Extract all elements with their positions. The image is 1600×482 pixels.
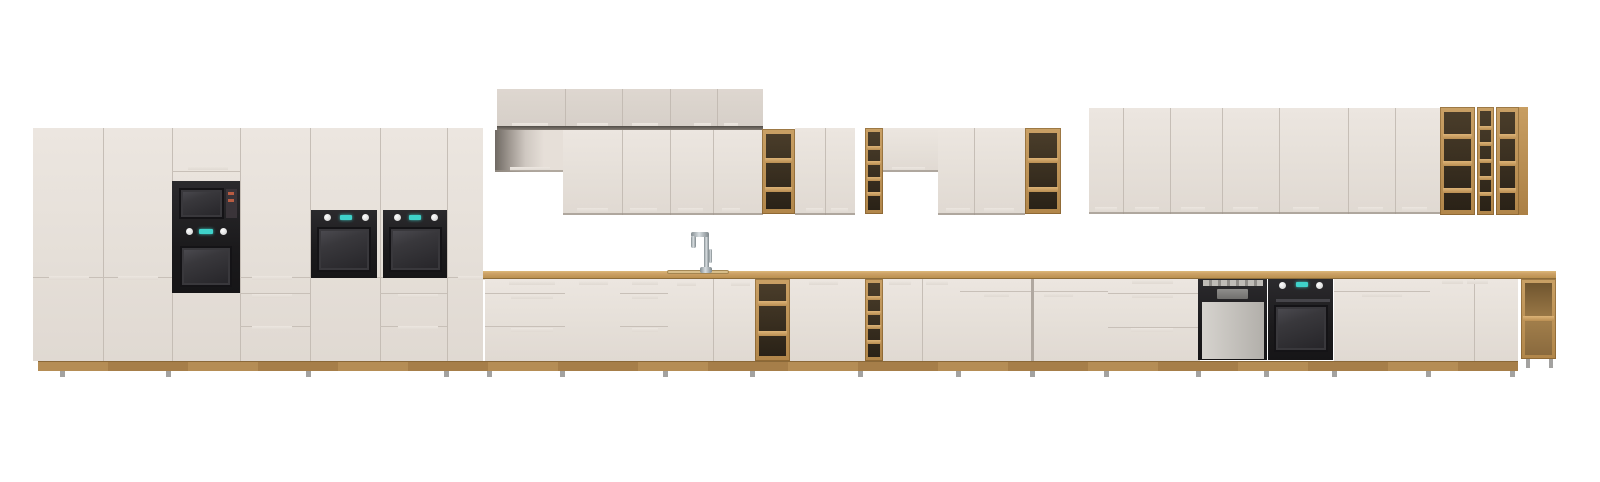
oven-knob [362, 214, 369, 221]
wine-rack-wall-unit-divider [1479, 142, 1492, 146]
wall-cabinet-seam [1348, 108, 1349, 214]
cabinet-foot [306, 371, 311, 377]
drawer-handle [1132, 294, 1173, 298]
countertop [483, 271, 1556, 279]
faucet-lever [709, 249, 712, 263]
drawer-handle [398, 326, 438, 330]
wall-cabinet-seam [1123, 108, 1124, 214]
wall-cabinet-row-right [1089, 108, 1440, 214]
cabinet-foot [1030, 371, 1035, 377]
wall-cabinet-seam [1395, 108, 1396, 214]
built-in-oven-window [389, 227, 442, 272]
plinth [38, 361, 1518, 371]
door-handle [118, 276, 158, 280]
dishwasher-front [1202, 302, 1264, 359]
drawer-handle [632, 295, 658, 299]
cabinet-foot [560, 371, 565, 377]
door-handle [731, 282, 750, 286]
tall-cabinet-seam [103, 128, 104, 361]
built-in-oven-window [1274, 305, 1328, 352]
door-handle [1181, 207, 1205, 211]
sink-base-cabinet [668, 279, 755, 361]
faucet-spout [691, 236, 696, 248]
top-rail-seam [1334, 291, 1430, 292]
door-handle [889, 281, 911, 285]
dishwasher-handle-recess [1217, 289, 1248, 299]
door-handle [806, 208, 823, 212]
cabinet-foot [166, 371, 171, 377]
door-handle [678, 208, 703, 212]
cabinet-foot [858, 371, 863, 377]
wall-cabinet-tall-tier [563, 130, 763, 215]
cabinet-bottom-shadow [938, 213, 1025, 215]
oven-display [1296, 282, 1308, 287]
oven-knob [220, 228, 227, 235]
cabinet-foot [444, 371, 449, 377]
wall-cabinet-seam [565, 89, 566, 127]
door-handle [1467, 280, 1488, 284]
drawer-handle [509, 281, 555, 285]
oven-knob [1316, 282, 1323, 289]
microwave-window [179, 188, 224, 219]
built-in-oven-window [180, 246, 232, 287]
door-handle [1095, 207, 1117, 211]
door-handle [577, 208, 608, 212]
base-drawer-unit [620, 279, 668, 361]
oven-knob [394, 214, 401, 221]
drawer-handle [252, 326, 292, 330]
drawer-handle [252, 294, 292, 298]
wine-rack-base-unit-divider [867, 340, 881, 344]
drawer-handle [632, 328, 658, 332]
wall-cabinet-seam [717, 89, 718, 127]
door-handle [1362, 293, 1402, 297]
wall-cabinet-seam [670, 130, 671, 215]
cabinet-foot [60, 371, 65, 377]
drawer-seam [620, 293, 668, 294]
cabinet-foot [1426, 371, 1431, 377]
wine-rack-base-unit-divider [867, 325, 881, 329]
drawer-handle [632, 281, 658, 285]
door-handle [1293, 207, 1319, 211]
cabinet-foot [750, 371, 755, 377]
door-handle [579, 281, 608, 285]
microwave-button [228, 199, 234, 202]
cabinet-foot [1264, 371, 1269, 377]
open-shelf-wall-unit-shelf [1028, 187, 1058, 192]
oven-display [409, 215, 421, 220]
door-handle [1135, 207, 1159, 211]
wall-cabinet-seam [1222, 108, 1223, 214]
wine-rack-wall-unit-divider [1479, 159, 1492, 163]
cabinet-foot [1104, 371, 1109, 377]
cabinet-foot [487, 371, 492, 377]
door-handle [722, 208, 740, 212]
drawer-handle [398, 294, 438, 298]
base-door-cabinet [565, 279, 620, 361]
base-cabinet-seam [713, 279, 714, 361]
oven-knob [324, 214, 331, 221]
faucet-base [700, 267, 712, 273]
door-handle [458, 276, 486, 280]
oven-display [340, 215, 352, 220]
door-handle [630, 208, 657, 212]
open-shelf-wall-unit-shelf [765, 158, 792, 163]
open-shelf-wall-unit-shelf [1028, 158, 1058, 163]
oven-knob [1279, 282, 1286, 289]
door-handle [1358, 207, 1383, 211]
wine-rack-wall-unit-divider [867, 146, 881, 150]
drawer-handle [511, 295, 553, 299]
wall-cabinet-top-tier [497, 89, 763, 127]
oven-knob [431, 214, 438, 221]
open-shelf-wall-unit-shelf [765, 187, 792, 192]
cabinet-bottom-shadow [495, 170, 563, 172]
dishwasher-top-controls [1203, 280, 1263, 286]
oven-display [199, 229, 213, 234]
cabinet-foot [1526, 359, 1530, 368]
door-handle [926, 281, 948, 285]
wall-cabinet-seam [622, 130, 623, 215]
drawer-seam [620, 326, 668, 327]
drawer-handle [511, 328, 553, 332]
drawer-handle [1132, 280, 1173, 284]
wall-cabinet-seam [825, 128, 826, 215]
drawer-seam [485, 293, 565, 294]
shelf-side-panel [1519, 107, 1528, 215]
wine-rack-wall-unit-divider [867, 192, 881, 196]
base-cabinet-seam [1474, 279, 1475, 361]
wall-cabinet [938, 128, 1025, 215]
door-handle [677, 282, 696, 286]
wine-rack-wall-unit-divider [1479, 126, 1492, 130]
door-handle [49, 276, 89, 280]
top-rail-seam [1034, 291, 1108, 292]
open-shelf-wall-unit-shelf [1499, 161, 1516, 166]
door-handle [1233, 207, 1258, 211]
open-shelf-wall-unit-shelf [1443, 188, 1472, 193]
drawer-seam [485, 326, 565, 327]
open-shelf-wall-unit-interior [766, 134, 791, 209]
open-shelf-end-unit-shelf [1523, 316, 1554, 321]
wine-rack-wall-unit-divider [1479, 192, 1492, 196]
wall-cabinet-seam [713, 130, 714, 215]
oven-knob [186, 228, 193, 235]
wine-rack-base-unit-divider [867, 296, 881, 300]
door-handle [809, 281, 838, 285]
wall-cabinet-seam [670, 89, 671, 127]
open-shelf-base-unit-shelf [758, 331, 787, 336]
tall-cabinet-seam [447, 128, 448, 361]
cabinet-foot [1510, 371, 1515, 377]
open-shelf-wall-unit-shelf [1443, 134, 1472, 139]
sink-rim [667, 270, 729, 274]
base-cabinet-seam [922, 279, 923, 361]
cabinet-bottom-shadow [1089, 212, 1440, 214]
door-handle [984, 208, 1014, 212]
wine-rack-wall-unit-divider [867, 161, 881, 165]
door-handle [252, 276, 292, 280]
wall-cabinet-seam [1170, 108, 1171, 214]
cabinet-foot [1549, 359, 1553, 368]
wine-rack-wall-unit-interior [868, 132, 880, 210]
door-handle [984, 293, 1009, 297]
cabinet-foot [663, 371, 668, 377]
base-drawer-unit [1108, 279, 1200, 361]
open-shelf-wall-unit-shelf [1499, 134, 1516, 139]
cabinet-foot [956, 371, 961, 377]
door-handle [1442, 280, 1463, 284]
open-shelf-wall-unit-shelf [1443, 161, 1472, 166]
open-shelf-wall-unit-shelf [1499, 188, 1516, 193]
cabinet-foot [1332, 371, 1337, 377]
wine-rack-base-unit-divider [867, 311, 881, 315]
tall-cabinet-top-door-seam [172, 171, 240, 172]
drawer-handle [1131, 328, 1173, 332]
door-handle [1044, 293, 1073, 297]
wall-cabinet-seam [1279, 108, 1280, 214]
open-shelf-base-unit-shelf [758, 301, 787, 306]
microwave-button [228, 192, 234, 195]
built-in-oven-window [317, 227, 371, 272]
top-rail-seam [960, 291, 1031, 292]
cabinet-bottom-shadow [795, 213, 855, 215]
door-handle [1402, 207, 1427, 211]
cabinet-foot [1196, 371, 1201, 377]
recessed-wall-cabinet [495, 130, 563, 172]
kitchen-set-product-render [0, 0, 1600, 482]
base-door-cabinet [790, 279, 865, 361]
wine-rack-wall-unit-divider [1479, 176, 1492, 180]
open-shelf-base-unit-interior [759, 284, 786, 356]
wall-cabinet-seam [622, 89, 623, 127]
door-handle [946, 208, 970, 212]
oven-door-handle-bar [1276, 299, 1330, 302]
hood-wall-cabinet [883, 128, 938, 172]
door-handle [831, 208, 848, 212]
base-drawer-unit [485, 279, 565, 361]
cabinet-bottom-shadow [563, 213, 763, 215]
open-shelf-wall-unit-interior [1029, 133, 1057, 209]
wine-rack-wall-unit-divider [867, 177, 881, 181]
door-handle [188, 166, 228, 170]
wine-rack-base-unit-interior [868, 283, 880, 357]
wall-cabinet-seam [974, 128, 975, 215]
cabinet-bottom-shadow [883, 170, 938, 172]
